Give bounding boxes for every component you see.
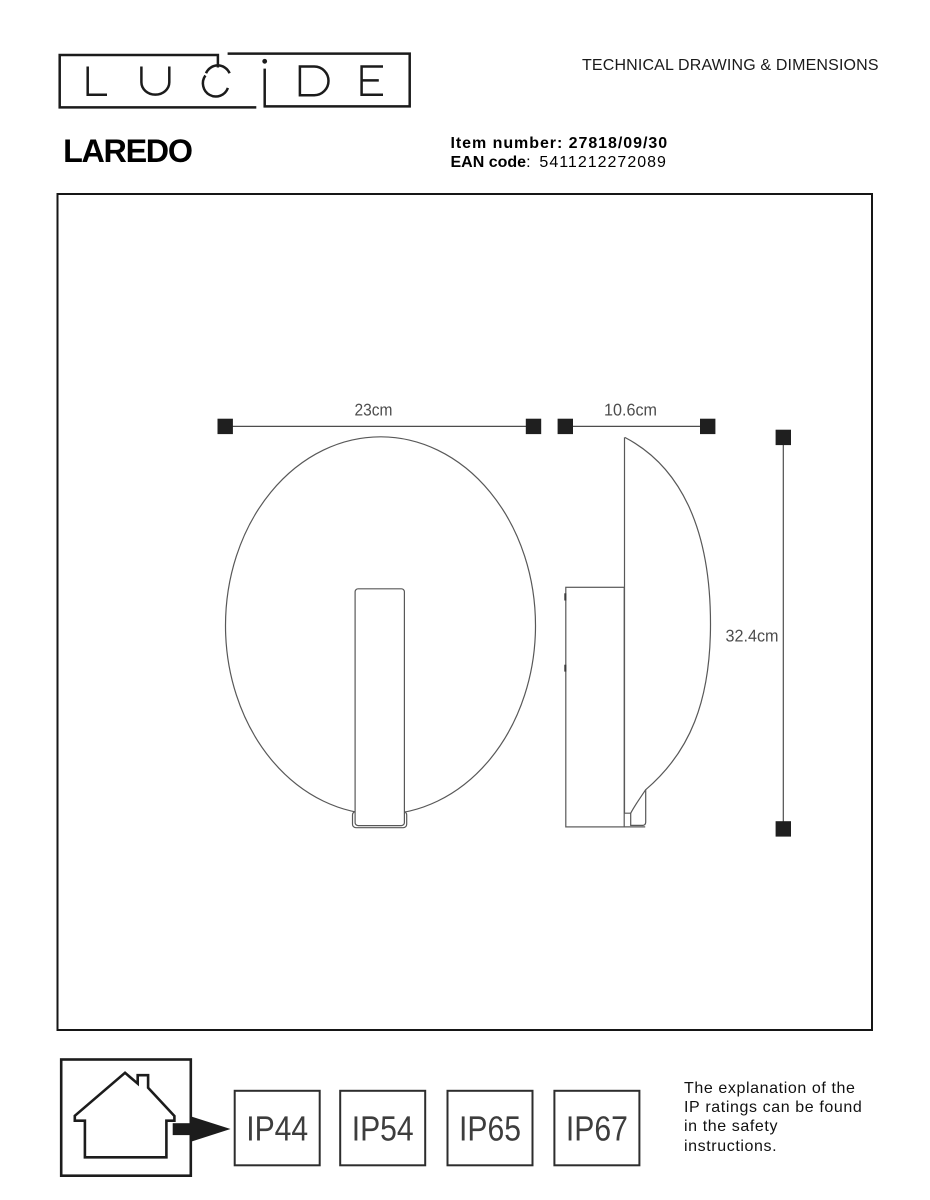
svg-text:32.4cm: 32.4cm xyxy=(726,627,779,646)
svg-text:23cm: 23cm xyxy=(355,401,393,420)
svg-text:IP44: IP44 xyxy=(246,1110,308,1149)
svg-text:10.6cm: 10.6cm xyxy=(604,401,657,420)
svg-text:IP65: IP65 xyxy=(459,1110,521,1149)
svg-text:IP67: IP67 xyxy=(566,1110,628,1149)
svg-text:IP54: IP54 xyxy=(352,1110,414,1149)
